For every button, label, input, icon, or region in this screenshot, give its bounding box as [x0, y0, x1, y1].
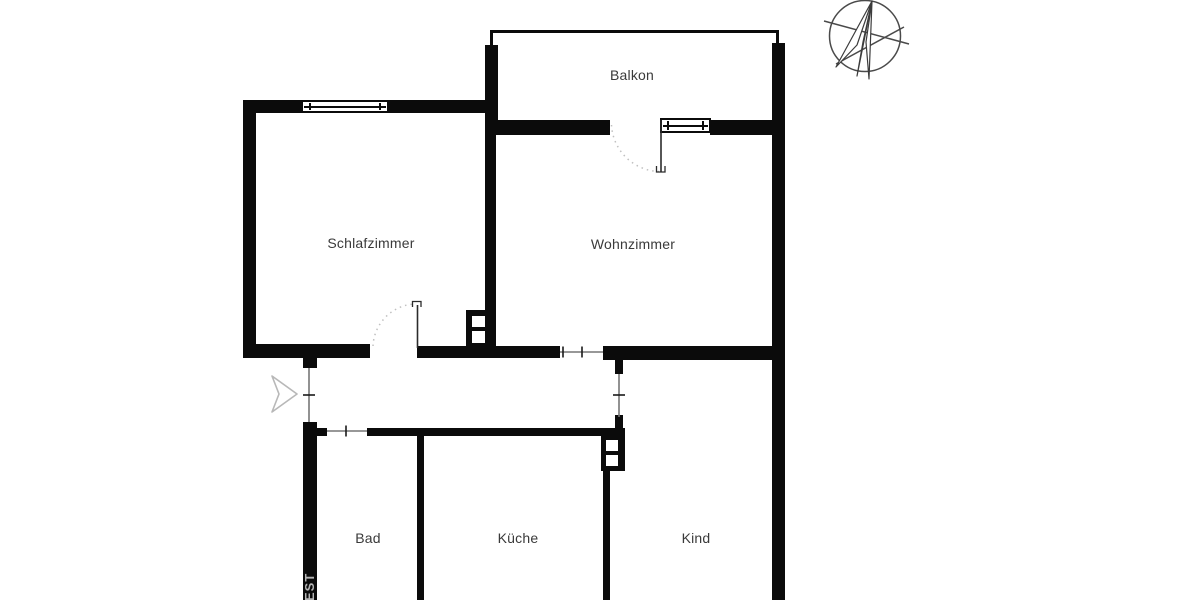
room-label-wohnzimmer: Wohnzimmer: [591, 236, 675, 252]
room-label-schlafzimmer: Schlafzimmer: [327, 235, 414, 251]
floor-plan-canvas: Balkon Schlafzimmer Wohnzimmer Bad Küche…: [0, 0, 1200, 600]
room-label-balkon: Balkon: [610, 67, 654, 83]
watermark-text: EST: [302, 573, 317, 600]
room-label-bad: Bad: [355, 530, 381, 546]
room-label-kind: Kind: [682, 530, 711, 546]
room-label-kueche: Küche: [498, 530, 539, 546]
room-label-layer: Balkon Schlafzimmer Wohnzimmer Bad Küche…: [0, 0, 1200, 600]
